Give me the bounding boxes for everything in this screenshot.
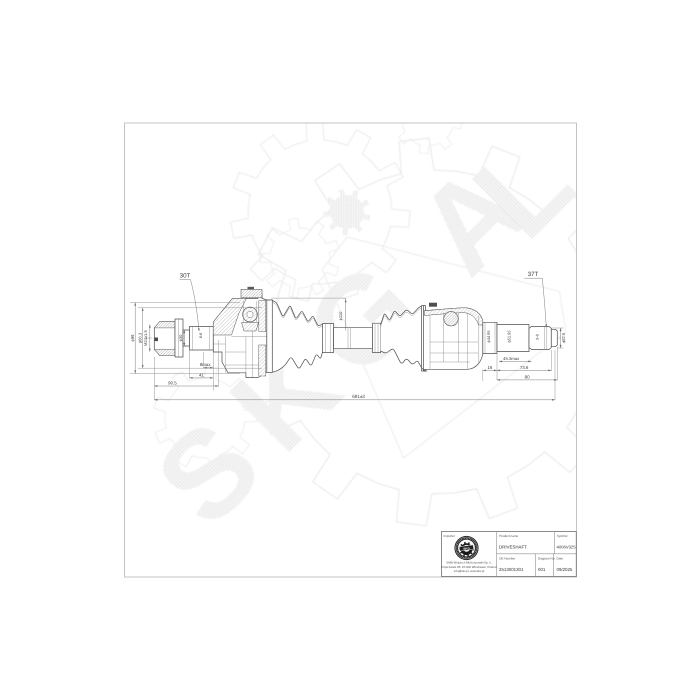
- svg-text:ϕ66.3: ϕ66.3: [138, 332, 143, 343]
- svg-text:41: 41: [199, 372, 204, 377]
- svg-text:37T: 37T: [528, 271, 539, 278]
- svg-text:ϕ99: ϕ99: [130, 334, 135, 342]
- svg-text:ϕ110: ϕ110: [338, 311, 343, 320]
- svg-text:ϕ51.95: ϕ51.95: [507, 330, 512, 343]
- svg-text:Symbol: Symbol: [557, 534, 568, 538]
- svg-text:OE Number: OE Number: [499, 557, 515, 561]
- svg-text:9-8: 9-8: [536, 334, 540, 340]
- svg-text:8max: 8max: [200, 362, 212, 367]
- svg-text:73.6: 73.6: [520, 365, 529, 370]
- svg-text:Product name: Product name: [499, 534, 519, 538]
- svg-text:Diagram No:: Diagram No:: [538, 557, 556, 561]
- svg-text:Importer: Importer: [444, 534, 456, 538]
- svg-text:Date: Date: [557, 557, 564, 561]
- svg-text:4006V325: 4006V325: [557, 544, 577, 549]
- svg-text:90.5: 90.5: [168, 380, 177, 385]
- svg-text:681±3: 681±3: [352, 394, 365, 399]
- svg-text:16: 16: [487, 365, 492, 370]
- svg-text:M24x1.5: M24x1.5: [143, 330, 148, 346]
- svg-text:DRIVESHAFT: DRIVESHAFT: [499, 545, 527, 550]
- svg-text:001: 001: [538, 567, 546, 572]
- svg-text:ϕ82.9: ϕ82.9: [561, 332, 566, 343]
- svg-text:09/2025: 09/2025: [557, 567, 573, 572]
- svg-text:8-8: 8-8: [199, 333, 203, 339]
- svg-text:45.3max: 45.3max: [503, 356, 520, 361]
- svg-text:ϕ30: ϕ30: [178, 334, 183, 341]
- svg-text:info@skv.pl, www.skv.pl: info@skv.pl, www.skv.pl: [454, 569, 485, 573]
- svg-text:80: 80: [525, 374, 530, 379]
- svg-text:2513001301: 2513001301: [499, 567, 524, 572]
- svg-text:30T: 30T: [180, 273, 191, 280]
- svg-text:ϕ44.95: ϕ44.95: [486, 330, 491, 343]
